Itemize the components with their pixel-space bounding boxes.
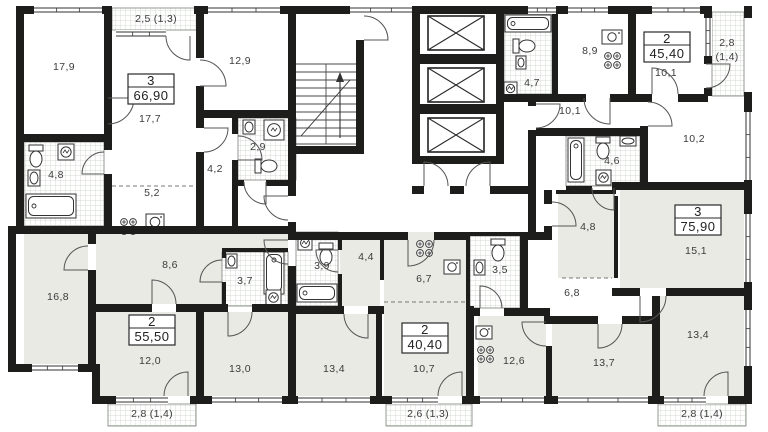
apartment-total-area: 40,40 bbox=[407, 337, 442, 352]
wall bbox=[544, 226, 552, 240]
wall bbox=[640, 94, 648, 102]
wall bbox=[356, 40, 364, 146]
window bbox=[480, 396, 544, 404]
wall bbox=[652, 296, 660, 396]
wall bbox=[288, 306, 344, 314]
wall bbox=[190, 396, 212, 404]
wall bbox=[288, 234, 296, 240]
window bbox=[32, 364, 78, 372]
apartment-info-box: 375,90 bbox=[675, 204, 721, 235]
wall bbox=[16, 134, 112, 142]
wall bbox=[744, 366, 752, 404]
apartment-info-box: 366,90 bbox=[128, 73, 174, 104]
room-area-label: 10,1 bbox=[655, 67, 677, 79]
room-area-label: 3,7 bbox=[237, 275, 253, 287]
toilet bbox=[255, 159, 277, 173]
room-area-label: 16,8 bbox=[47, 291, 69, 303]
room-area-label: 3,9 bbox=[314, 260, 330, 272]
room-area-label: 10,2 bbox=[683, 133, 705, 145]
wall bbox=[412, 54, 504, 64]
room-area-label: 8,9 bbox=[582, 45, 598, 57]
wall bbox=[544, 190, 552, 204]
wall bbox=[104, 174, 112, 234]
wall bbox=[466, 232, 470, 310]
window bbox=[116, 396, 168, 404]
room-area-label: 5,2 bbox=[144, 187, 160, 199]
apartment-rooms-count: 2 bbox=[421, 322, 429, 337]
room-floor bbox=[660, 296, 744, 396]
wall bbox=[470, 232, 520, 236]
wall bbox=[96, 304, 152, 312]
room-area-label: 13,4 bbox=[323, 363, 345, 375]
balcony-area-label: 2,6 (1,3) bbox=[407, 408, 449, 420]
sink bbox=[474, 260, 485, 275]
room-area-label: 4,4 bbox=[358, 251, 374, 263]
wall bbox=[704, 56, 712, 64]
wall bbox=[666, 288, 752, 296]
wall bbox=[16, 226, 296, 234]
wall bbox=[450, 186, 464, 194]
window bbox=[392, 396, 438, 404]
toilet bbox=[513, 39, 535, 53]
wall bbox=[612, 288, 640, 296]
room-area-label: 17,7 bbox=[139, 113, 161, 125]
wall bbox=[678, 94, 708, 102]
apartment-rooms-count: 3 bbox=[694, 204, 702, 219]
window bbox=[744, 112, 752, 180]
wall bbox=[640, 126, 648, 190]
window bbox=[652, 6, 700, 14]
wall bbox=[368, 306, 384, 314]
room-area-label: 6,7 bbox=[416, 273, 432, 285]
toilet bbox=[491, 239, 505, 261]
wall bbox=[104, 6, 112, 142]
wall bbox=[222, 282, 226, 306]
wall bbox=[288, 222, 296, 234]
wall bbox=[496, 14, 504, 164]
wall bbox=[288, 154, 296, 196]
wall bbox=[462, 396, 480, 404]
wall bbox=[222, 248, 288, 252]
toilet bbox=[29, 145, 43, 167]
apartment-info-box: 240,40 bbox=[402, 322, 448, 353]
room-area-label: 2,9 bbox=[250, 141, 266, 153]
wall bbox=[412, 186, 424, 194]
wall bbox=[288, 146, 364, 154]
wall bbox=[232, 118, 238, 134]
washing-machine-icon bbox=[58, 144, 74, 160]
wall bbox=[238, 180, 244, 186]
wall bbox=[8, 234, 16, 372]
apartment-rooms-count: 3 bbox=[147, 73, 155, 88]
apartment-info-box: 255,50 bbox=[129, 314, 175, 345]
kitchen-sink bbox=[476, 326, 492, 339]
wall bbox=[88, 226, 96, 244]
apartment-total-area: 66,90 bbox=[133, 88, 168, 103]
wall bbox=[614, 196, 618, 278]
wall bbox=[412, 6, 528, 14]
wall bbox=[608, 6, 652, 14]
wall bbox=[520, 232, 528, 310]
bathtub bbox=[297, 284, 337, 302]
washing-machine-icon bbox=[264, 120, 284, 140]
window bbox=[350, 6, 412, 14]
bathtub bbox=[26, 194, 76, 218]
wall bbox=[196, 6, 204, 58]
room-area-label: 4,2 bbox=[207, 163, 223, 175]
window bbox=[528, 6, 556, 14]
wall bbox=[546, 316, 552, 322]
room-area-label: 15,1 bbox=[685, 245, 707, 257]
window bbox=[664, 396, 706, 404]
wall bbox=[704, 88, 712, 96]
wall bbox=[544, 396, 558, 404]
room-floor bbox=[296, 314, 376, 396]
window bbox=[212, 396, 282, 404]
wall bbox=[232, 160, 238, 234]
sink bbox=[243, 120, 255, 134]
wall bbox=[412, 104, 504, 114]
room-area-label: 13,4 bbox=[687, 329, 709, 341]
room-area-label: 17,9 bbox=[53, 61, 75, 73]
elevator-shaft bbox=[428, 16, 484, 50]
elevator-shaft bbox=[428, 68, 484, 102]
window bbox=[568, 6, 608, 14]
window bbox=[744, 310, 752, 366]
washing-machine-icon bbox=[266, 290, 281, 305]
wall bbox=[528, 232, 544, 240]
bathtub bbox=[264, 252, 284, 294]
room-area-label: 4,8 bbox=[580, 221, 596, 233]
room-area-label: 4,8 bbox=[48, 169, 64, 181]
sink bbox=[226, 254, 237, 268]
wall bbox=[566, 186, 592, 190]
wall bbox=[104, 142, 112, 150]
room-area-label: 4,6 bbox=[604, 155, 620, 167]
window bbox=[34, 6, 102, 14]
room-area-label: 8,6 bbox=[162, 259, 178, 271]
wall bbox=[296, 232, 408, 240]
room-area-label: 10,1 bbox=[559, 105, 581, 117]
wall bbox=[556, 190, 616, 194]
wall bbox=[504, 308, 550, 316]
wall bbox=[88, 270, 96, 372]
apartment-info-box: 245,40 bbox=[644, 31, 690, 62]
apartment-rooms-count: 2 bbox=[663, 31, 671, 46]
wall bbox=[376, 306, 382, 396]
wall bbox=[288, 6, 296, 146]
wall bbox=[16, 6, 24, 234]
apartment-total-area: 45,40 bbox=[649, 46, 684, 61]
wall bbox=[412, 14, 420, 164]
kitchen-sink bbox=[444, 260, 460, 274]
wall bbox=[614, 186, 640, 190]
wall bbox=[338, 274, 342, 308]
room-area-label: 12,6 bbox=[503, 355, 525, 367]
wall bbox=[370, 396, 392, 404]
sink bbox=[28, 170, 40, 186]
wall bbox=[546, 346, 552, 396]
apartment-total-area: 75,90 bbox=[680, 219, 715, 234]
balcony-area-label: 2,8 bbox=[719, 37, 735, 49]
window bbox=[558, 396, 648, 404]
wall bbox=[544, 316, 598, 324]
wall bbox=[196, 308, 204, 396]
wall bbox=[196, 110, 296, 118]
window bbox=[116, 30, 166, 38]
room-floor bbox=[204, 312, 288, 396]
sink bbox=[620, 136, 636, 146]
room-floor bbox=[340, 232, 380, 306]
room-area-label: 12,9 bbox=[229, 55, 251, 67]
wall bbox=[704, 12, 712, 18]
balcony-area-label: 2,8 (1,4) bbox=[681, 408, 723, 420]
wall bbox=[744, 92, 752, 112]
wall bbox=[8, 364, 34, 372]
room-area-label: 13,7 bbox=[593, 357, 615, 369]
window bbox=[208, 6, 280, 14]
room-area-label: 3,5 bbox=[492, 264, 508, 276]
wall bbox=[744, 6, 752, 18]
bathtub bbox=[505, 15, 551, 32]
apartment-total-area: 55,50 bbox=[134, 329, 169, 344]
washing-machine-icon bbox=[596, 170, 611, 185]
window bbox=[298, 396, 370, 404]
wall bbox=[552, 14, 558, 94]
room-area-label: 13,0 bbox=[229, 363, 251, 375]
wall bbox=[252, 304, 288, 312]
kitchen-sink bbox=[602, 30, 622, 44]
room-area-label: 4,7 bbox=[524, 77, 540, 89]
apartment-rooms-count: 2 bbox=[148, 314, 156, 329]
washing-machine-icon bbox=[504, 82, 517, 95]
window bbox=[744, 214, 752, 282]
wall bbox=[196, 152, 204, 232]
sink bbox=[516, 56, 526, 69]
wall bbox=[536, 128, 640, 136]
wall bbox=[466, 306, 474, 396]
wall bbox=[282, 396, 298, 404]
wall bbox=[288, 266, 296, 396]
balcony-area-label: 2,8 (1,4) bbox=[131, 408, 173, 420]
wall bbox=[628, 14, 636, 94]
bathtub bbox=[568, 138, 584, 182]
wall bbox=[496, 94, 586, 102]
elevator-bank bbox=[428, 16, 484, 152]
wall bbox=[556, 6, 568, 14]
balcony-area-label: 2,5 (1,3) bbox=[135, 13, 177, 25]
wall bbox=[648, 396, 664, 404]
wall bbox=[528, 94, 536, 106]
window bbox=[704, 18, 712, 56]
room-area-label: 12,0 bbox=[139, 355, 161, 367]
wall bbox=[434, 232, 466, 240]
room-area-label: 10,7 bbox=[413, 363, 435, 375]
elevator-shaft bbox=[428, 118, 484, 152]
room-area-label: 6,8 bbox=[564, 287, 580, 299]
balcony-area-label: (1,4) bbox=[715, 51, 738, 63]
floor-plan-drawing: 17,917,712,94,82,94,25,28,63,716,812,013… bbox=[0, 0, 768, 432]
wall bbox=[96, 396, 116, 404]
wall bbox=[222, 252, 226, 258]
wall bbox=[196, 118, 204, 128]
floor-plan: 17,917,712,94,82,94,25,28,63,716,812,013… bbox=[0, 0, 768, 432]
wall bbox=[528, 130, 536, 240]
